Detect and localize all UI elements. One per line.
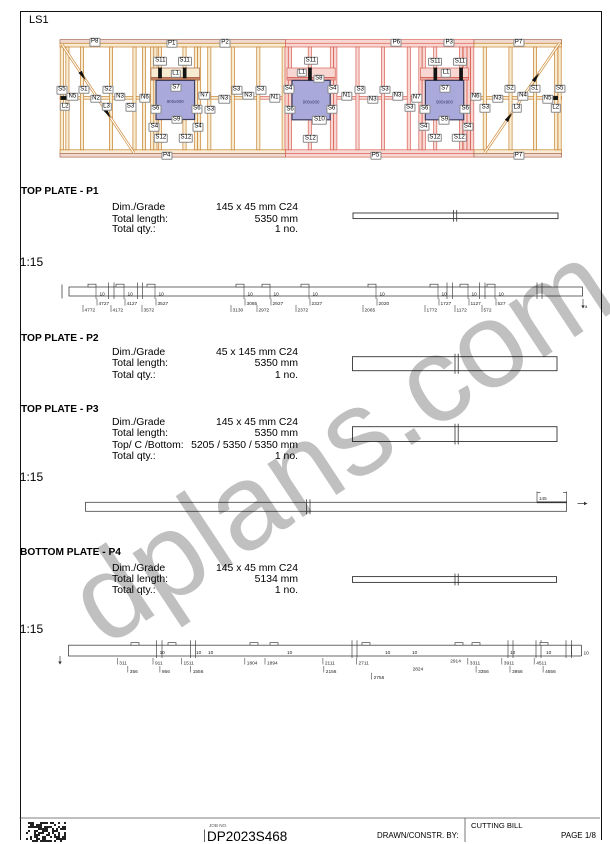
svg-text:10: 10 bbox=[385, 650, 391, 656]
svg-text:2065: 2065 bbox=[365, 307, 376, 313]
svg-text:900x900: 900x900 bbox=[436, 99, 453, 104]
svg-text:2111: 2111 bbox=[325, 661, 335, 667]
svg-text:1511: 1511 bbox=[184, 661, 195, 667]
svg-text:3356: 3356 bbox=[478, 669, 489, 675]
svg-text:10: 10 bbox=[313, 292, 319, 298]
svg-text:4172: 4172 bbox=[113, 307, 124, 313]
svg-text:1172: 1172 bbox=[457, 307, 468, 313]
svg-text:10: 10 bbox=[274, 292, 280, 298]
svg-text:1727: 1727 bbox=[441, 301, 452, 307]
svg-text:4727: 4727 bbox=[99, 301, 110, 307]
svg-text:10: 10 bbox=[584, 651, 590, 657]
svg-text:4127: 4127 bbox=[127, 301, 138, 307]
svg-text:911: 911 bbox=[155, 661, 163, 667]
svg-text:10: 10 bbox=[510, 650, 516, 656]
svg-text:2327: 2327 bbox=[312, 301, 323, 307]
svg-text:956: 956 bbox=[162, 669, 170, 675]
svg-text:1772: 1772 bbox=[427, 307, 438, 313]
svg-text:10: 10 bbox=[442, 292, 448, 298]
svg-text:1894: 1894 bbox=[267, 661, 278, 667]
svg-text:2927: 2927 bbox=[273, 301, 284, 307]
svg-text:356: 356 bbox=[130, 669, 138, 675]
svg-text:1804: 1804 bbox=[247, 661, 258, 667]
svg-text:2372: 2372 bbox=[298, 307, 309, 313]
svg-text:a: a bbox=[585, 304, 588, 309]
svg-text:4511: 4511 bbox=[536, 661, 547, 667]
svg-text:3527: 3527 bbox=[158, 301, 169, 307]
svg-text:10: 10 bbox=[128, 292, 134, 298]
svg-text:10: 10 bbox=[160, 650, 166, 656]
svg-text:145: 145 bbox=[539, 496, 547, 501]
svg-text:10: 10 bbox=[248, 292, 254, 298]
svg-text:10: 10 bbox=[412, 650, 418, 656]
svg-text:10: 10 bbox=[472, 292, 478, 298]
svg-text:2914: 2914 bbox=[450, 658, 461, 664]
svg-text:10: 10 bbox=[100, 292, 106, 298]
svg-text:10: 10 bbox=[499, 292, 505, 298]
svg-text:1127: 1127 bbox=[471, 301, 482, 307]
svg-text:900x900: 900x900 bbox=[303, 99, 320, 104]
svg-text:2020: 2020 bbox=[379, 301, 390, 307]
svg-text:3311: 3311 bbox=[470, 661, 481, 667]
svg-text:2156: 2156 bbox=[326, 669, 337, 675]
svg-text:311: 311 bbox=[119, 661, 127, 667]
svg-text:1556: 1556 bbox=[193, 669, 204, 675]
svg-text:2756: 2756 bbox=[374, 675, 385, 681]
svg-text:10: 10 bbox=[159, 292, 165, 298]
svg-text:3130: 3130 bbox=[233, 307, 244, 313]
svg-text:10: 10 bbox=[208, 650, 214, 656]
svg-text:10: 10 bbox=[546, 650, 552, 656]
svg-text:10: 10 bbox=[380, 292, 386, 298]
svg-text:3956: 3956 bbox=[512, 669, 523, 675]
svg-text:2824: 2824 bbox=[413, 667, 424, 673]
svg-text:3572: 3572 bbox=[144, 307, 155, 313]
svg-text:4772: 4772 bbox=[85, 307, 96, 313]
svg-text:900x900: 900x900 bbox=[167, 99, 184, 104]
svg-text:10: 10 bbox=[196, 650, 202, 656]
svg-text:572: 572 bbox=[484, 307, 492, 313]
svg-text:4556: 4556 bbox=[545, 669, 556, 675]
svg-text:527: 527 bbox=[498, 301, 506, 307]
svg-text:3911: 3911 bbox=[504, 661, 515, 667]
svg-text:3085: 3085 bbox=[247, 301, 258, 307]
svg-text:2972: 2972 bbox=[259, 307, 270, 313]
svg-text:10: 10 bbox=[287, 650, 293, 656]
svg-text:2711: 2711 bbox=[359, 661, 370, 667]
